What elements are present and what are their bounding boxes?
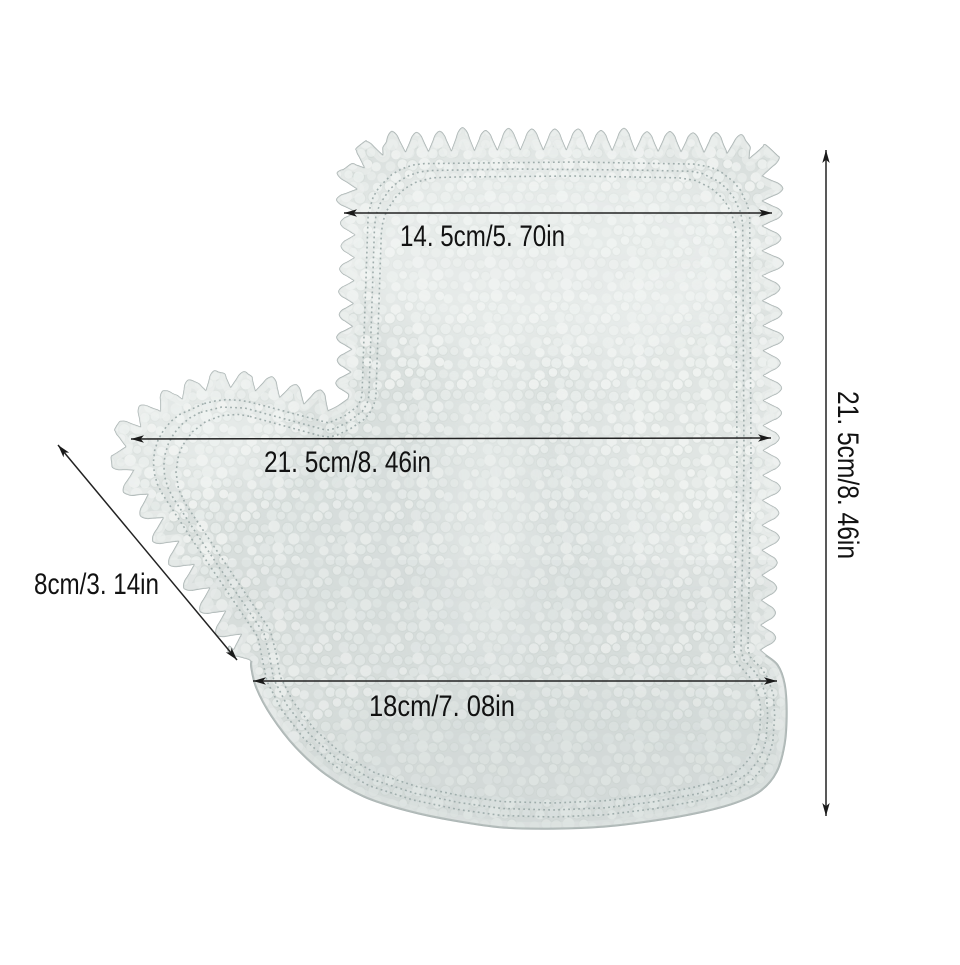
svg-text:21. 5cm/8. 46in: 21. 5cm/8. 46in xyxy=(831,391,864,559)
svg-text:18cm/7. 08in: 18cm/7. 08in xyxy=(369,690,515,723)
svg-text:8cm/3. 14in: 8cm/3. 14in xyxy=(34,568,159,601)
svg-text:14. 5cm/5. 70in: 14. 5cm/5. 70in xyxy=(400,220,565,253)
svg-text:21. 5cm/8. 46in: 21. 5cm/8. 46in xyxy=(264,446,431,479)
